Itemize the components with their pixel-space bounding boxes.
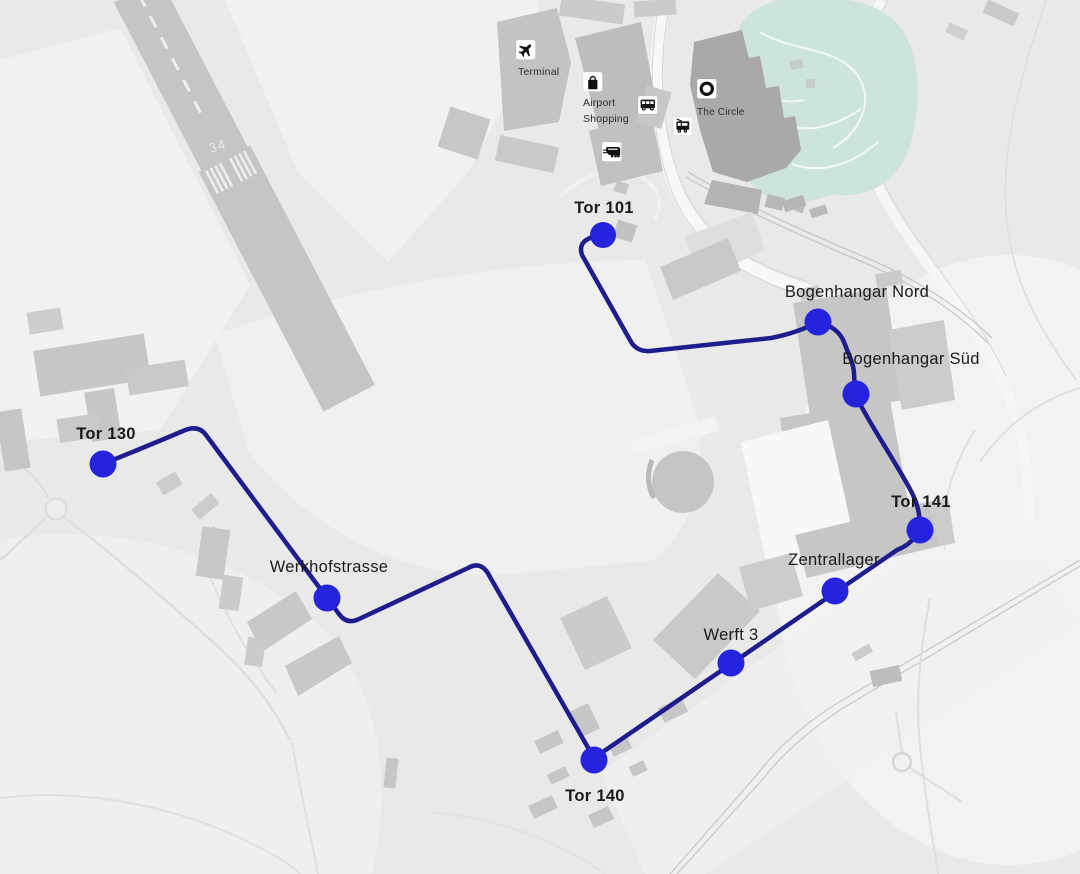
stop-marker-bogenhangar-nord[interactable] <box>805 309 832 336</box>
poi-tram-stop <box>673 117 693 136</box>
poi-bus-stop <box>638 96 658 114</box>
stop-label-werft-3: Werft 3 <box>704 626 759 644</box>
stop-marker-zentrallager[interactable] <box>822 578 849 605</box>
stop-marker-bogenhangar-sued[interactable] <box>843 381 870 408</box>
stop-label-tor-140: Tor 140 <box>565 787 625 805</box>
stop-label-tor-101: Tor 101 <box>574 199 634 217</box>
stop-marker-tor-141[interactable] <box>907 517 934 544</box>
stop-marker-tor-101[interactable] <box>590 222 616 248</box>
stop-label-bogenhangar-sued: Bogenhangar Süd <box>842 350 980 368</box>
stop-label-bogenhangar-nord: Bogenhangar Nord <box>785 283 929 301</box>
stop-label-werkhofstrasse: Werkhofstrasse <box>270 558 389 576</box>
poi-label-airport-shopping-line1: Airport <box>583 97 615 109</box>
poi-label-terminal: Terminal <box>518 66 559 78</box>
stop-label-tor-141: Tor 141 <box>891 493 951 511</box>
stop-marker-tor-130[interactable] <box>90 451 117 478</box>
stop-marker-werft-3[interactable] <box>718 650 745 677</box>
poi-train-station <box>602 142 622 162</box>
stop-label-zentrallager: Zentrallager <box>788 551 880 569</box>
poi-label-the-circle: The Circle <box>697 107 745 118</box>
poi-label-airport-shopping-line2: Shopping <box>583 113 629 125</box>
stop-marker-tor-140[interactable] <box>581 747 608 774</box>
stop-label-tor-130: Tor 130 <box>76 425 136 443</box>
stop-marker-werkhofstrasse[interactable] <box>314 585 341 612</box>
circle-icon <box>701 83 712 94</box>
airport-route-map: 34 Tor 130 Werkhofstrasse Tor 140 Werft … <box>0 0 1080 874</box>
